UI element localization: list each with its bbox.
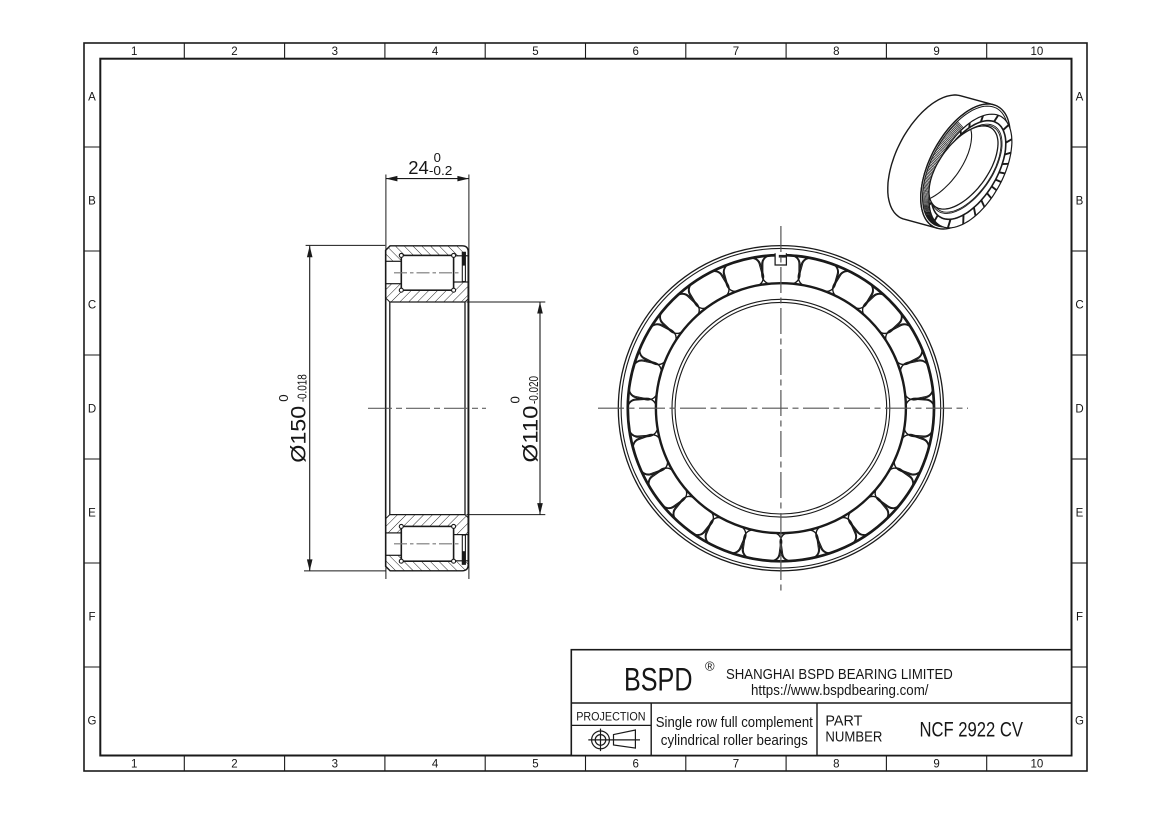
svg-text:B: B bbox=[88, 196, 96, 208]
svg-text:C: C bbox=[88, 300, 96, 312]
svg-text:5: 5 bbox=[532, 759, 538, 771]
svg-text:C: C bbox=[1075, 300, 1083, 312]
svg-text:4: 4 bbox=[432, 46, 439, 58]
svg-text:4: 4 bbox=[432, 759, 439, 771]
svg-text:F: F bbox=[88, 612, 95, 624]
svg-text:NCF 2922 CV: NCF 2922 CV bbox=[920, 718, 1024, 741]
svg-text:D: D bbox=[88, 404, 96, 416]
svg-text:E: E bbox=[88, 508, 96, 520]
svg-text:https://www.bspdbearing.com/: https://www.bspdbearing.com/ bbox=[751, 682, 929, 699]
svg-text:-0.018: -0.018 bbox=[294, 374, 309, 402]
svg-text:D: D bbox=[1075, 404, 1083, 416]
svg-text:0: 0 bbox=[276, 394, 291, 401]
svg-text:2: 2 bbox=[231, 759, 237, 771]
svg-text:®: ® bbox=[705, 659, 715, 674]
svg-text:cylindrical roller bearings: cylindrical roller bearings bbox=[661, 732, 808, 749]
svg-text:6: 6 bbox=[632, 46, 638, 58]
svg-text:10: 10 bbox=[1031, 759, 1044, 771]
svg-text:5: 5 bbox=[532, 46, 538, 58]
svg-text:8: 8 bbox=[833, 46, 839, 58]
svg-text:0: 0 bbox=[508, 396, 523, 403]
svg-text:8: 8 bbox=[833, 759, 839, 771]
svg-text:G: G bbox=[88, 716, 97, 728]
svg-text:Single row full complement: Single row full complement bbox=[656, 714, 814, 731]
svg-text:PART: PART bbox=[825, 712, 862, 729]
svg-text:F: F bbox=[1076, 612, 1083, 624]
svg-text:6: 6 bbox=[632, 759, 638, 771]
svg-text:9: 9 bbox=[933, 759, 939, 771]
svg-text:G: G bbox=[1075, 716, 1084, 728]
svg-text:PROJECTION: PROJECTION bbox=[576, 710, 645, 723]
svg-text:A: A bbox=[1076, 92, 1084, 104]
svg-text:Ø150: Ø150 bbox=[287, 406, 311, 463]
svg-text:3: 3 bbox=[332, 759, 338, 771]
svg-text:1: 1 bbox=[131, 46, 137, 58]
svg-text:-0.2: -0.2 bbox=[429, 163, 453, 178]
svg-text:B: B bbox=[1076, 196, 1084, 208]
svg-text:9: 9 bbox=[933, 46, 939, 58]
svg-text:10: 10 bbox=[1031, 46, 1044, 58]
svg-text:7: 7 bbox=[733, 46, 739, 58]
svg-text:Ø110: Ø110 bbox=[518, 405, 542, 462]
svg-text:7: 7 bbox=[733, 759, 739, 771]
svg-text:24: 24 bbox=[408, 157, 429, 178]
svg-text:1: 1 bbox=[131, 759, 137, 771]
svg-text:SHANGHAI BSPD BEARING LIMITED: SHANGHAI BSPD BEARING LIMITED bbox=[726, 666, 953, 683]
svg-text:NUMBER: NUMBER bbox=[825, 728, 882, 745]
svg-text:E: E bbox=[1076, 508, 1084, 520]
svg-text:A: A bbox=[88, 92, 96, 104]
svg-text:BSPD: BSPD bbox=[624, 661, 693, 697]
svg-text:2: 2 bbox=[231, 46, 237, 58]
svg-text:-0.020: -0.020 bbox=[526, 376, 541, 404]
svg-text:3: 3 bbox=[332, 46, 338, 58]
